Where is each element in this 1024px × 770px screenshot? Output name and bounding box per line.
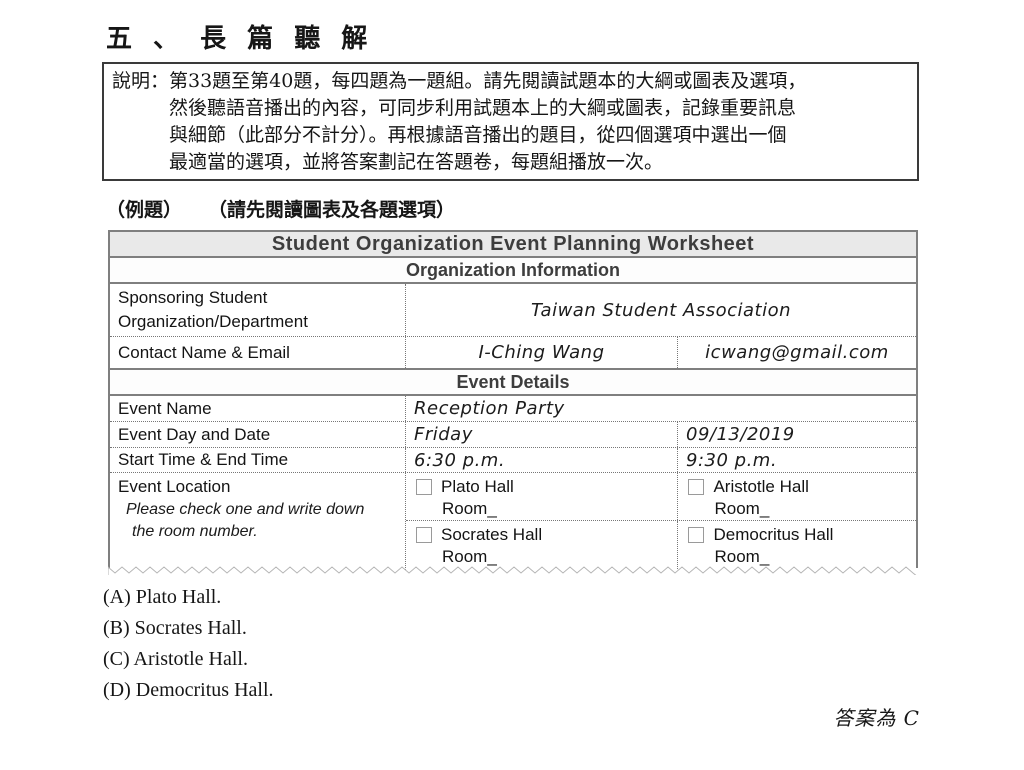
worksheet-title-row: Student Organization Event Planning Work… (110, 232, 916, 258)
time-label: Start Time & End Time (118, 448, 288, 472)
contact-name-value: I-Ching Wang (478, 342, 604, 363)
org-info-section-title: Organization Information (406, 260, 620, 281)
event-day-label: Event Day and Date (118, 423, 270, 447)
event-name-row: Event Name Reception Party (110, 396, 916, 422)
room-number-field[interactable]: Room_ (688, 499, 916, 519)
event-name-value: Reception Party (414, 398, 565, 419)
example-heading: （例題）（請先閱讀圖表及各題選項） (106, 197, 455, 223)
instruction-line: 說明：第33題至第40題，每四題為一題組。請先閱讀試題本的大綱或圖表及選項， (112, 68, 909, 95)
contact-label: Contact Name & Email (118, 341, 290, 365)
location-name: Aristotle Hall (713, 477, 808, 497)
contact-email-value: icwang@gmail.com (705, 342, 889, 363)
exam-page: 五 、 長 篇 聽 解 說明：第33題至第40題，每四題為一題組。請先閱讀試題本… (0, 0, 1024, 770)
contact-row: Contact Name & Email I-Ching Wang icwang… (110, 337, 916, 370)
instruction-line: 然後聽語音播出的內容，可同步利用試題本上的大綱或圖表，記錄重要訊息 (112, 95, 909, 122)
location-name: Democritus Hall (713, 525, 833, 545)
example-note: （請先閱讀圖表及各題選項） (208, 199, 455, 221)
instruction-line: 最適當的選項，並將答案劃記在答題卷，每題組播放一次。 (112, 149, 909, 176)
option-d: (D) Democritus Hall. (103, 675, 274, 706)
location-option-socrates: Socrates Hall Room_ (406, 521, 677, 569)
event-day-value: Friday (414, 424, 473, 445)
option-b: (B) Socrates Hall. (103, 613, 274, 644)
event-location-label: Event Location (118, 475, 397, 499)
location-note-line1: Please check one and write down (118, 499, 397, 521)
event-name-label: Event Name (118, 397, 212, 421)
room-number-field[interactable]: Room_ (416, 499, 677, 519)
sponsoring-label: Sponsoring Student Organization/Departme… (118, 286, 397, 334)
org-info-section-row: Organization Information (110, 258, 916, 284)
location-option-aristotle: Aristotle Hall Room_ (677, 473, 916, 520)
section-title: 五 、 長 篇 聽 解 (106, 24, 373, 54)
location-option-democritus: Democritus Hall Room_ (677, 521, 916, 569)
event-details-section-title: Event Details (456, 372, 569, 393)
option-a: (A) Plato Hall. (103, 582, 274, 613)
location-note-line2: the room number. (118, 521, 397, 543)
end-time-value: 9:30 p.m. (686, 450, 777, 471)
checkbox-aristotle-hall[interactable] (688, 479, 704, 495)
answer-note: 答案為 C (833, 702, 920, 731)
event-day-row: Event Day and Date Friday 09/13/2019 (110, 422, 916, 448)
location-option-plato: Plato Hall Room_ (406, 473, 677, 520)
sponsoring-value: Taiwan Student Association (531, 300, 791, 321)
worksheet-table: Student Organization Event Planning Work… (108, 230, 918, 568)
option-c: (C) Aristotle Hall. (103, 644, 274, 675)
instruction-box: 說明：第33題至第40題，每四題為一題組。請先閱讀試題本的大綱或圖表及選項， 然… (102, 62, 919, 181)
event-date-value: 09/13/2019 (686, 424, 795, 445)
answer-options: (A) Plato Hall. (B) Socrates Hall. (C) A… (103, 582, 274, 706)
event-location-row: Event Location Please check one and writ… (110, 473, 916, 570)
event-details-section-row: Event Details (110, 370, 916, 396)
start-time-value: 6:30 p.m. (414, 450, 505, 471)
location-name: Socrates Hall (441, 525, 542, 545)
checkbox-socrates-hall[interactable] (416, 527, 432, 543)
table-torn-edge (108, 565, 918, 575)
checkbox-democritus-hall[interactable] (688, 527, 704, 543)
room-number-field[interactable]: Room_ (688, 547, 916, 567)
location-name: Plato Hall (441, 477, 514, 497)
sponsoring-row: Sponsoring Student Organization/Departme… (110, 284, 916, 337)
room-number-field[interactable]: Room_ (416, 547, 677, 567)
checkbox-plato-hall[interactable] (416, 479, 432, 495)
instruction-line: 與細節（此部分不計分）。再根據語音播出的題目，從四個選項中選出一個 (112, 122, 909, 149)
example-label: （例題） (106, 199, 182, 221)
event-time-row: Start Time & End Time 6:30 p.m. 9:30 p.m… (110, 448, 916, 473)
worksheet-title: Student Organization Event Planning Work… (272, 233, 754, 256)
